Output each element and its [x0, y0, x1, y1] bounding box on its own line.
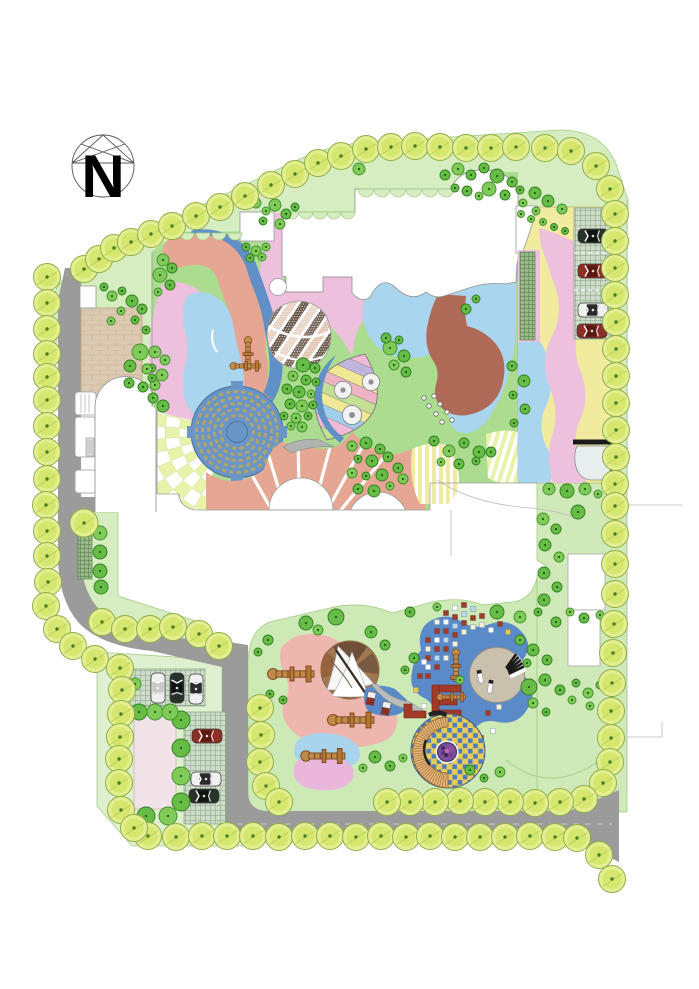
svg-text:N: N: [81, 143, 124, 210]
